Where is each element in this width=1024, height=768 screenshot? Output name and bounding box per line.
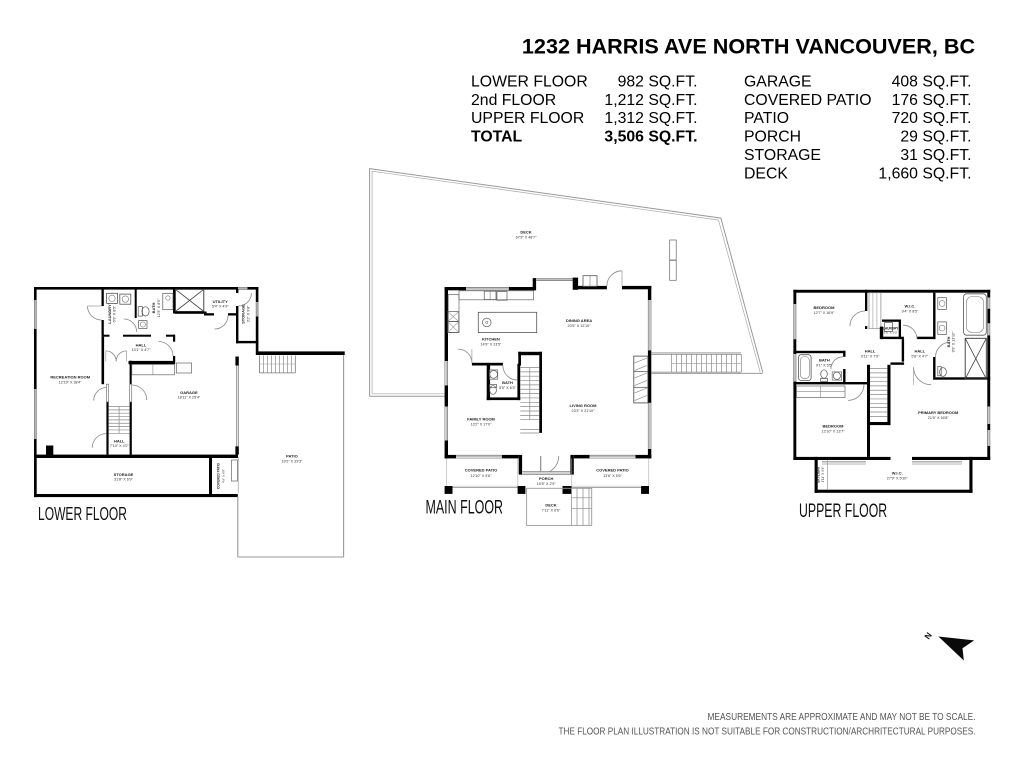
- svg-text:31 SQ.FT.: 31 SQ.FT.: [900, 147, 971, 164]
- svg-text:13'1" X 4'7": 13'1" X 4'7": [132, 348, 151, 352]
- svg-text:7'11" X 6'6": 7'11" X 6'6": [542, 509, 561, 513]
- svg-text:13'6" X 5'6": 13'6" X 5'6": [603, 474, 622, 478]
- svg-text:LAUNDRY: LAUNDRY: [107, 304, 112, 324]
- svg-text:9'9" X 13'10": 9'9" X 13'10": [952, 331, 956, 353]
- svg-text:5'8" X 4'7": 5'8" X 4'7": [911, 354, 928, 358]
- svg-text:3'6" X 3'3": 3'6" X 3'3": [884, 330, 898, 334]
- svg-text:BATH: BATH: [819, 358, 830, 363]
- svg-text:5'4" X 4'9": 5'4" X 4'9": [212, 305, 229, 309]
- svg-text:13'2" X 17'0": 13'2" X 17'0": [471, 423, 493, 427]
- svg-text:67'9" X 48'7": 67'9" X 48'7": [516, 236, 538, 240]
- svg-text:1,312 SQ.FT.: 1,312 SQ.FT.: [604, 110, 697, 127]
- svg-text:6'9" X 8'5": 6'9" X 8'5": [113, 305, 117, 322]
- svg-text:STORAGE: STORAGE: [744, 147, 821, 164]
- svg-text:UPPER FLOOR: UPPER FLOOR: [471, 110, 584, 127]
- svg-text:3,506 SQ.FT.: 3,506 SQ.FT.: [604, 129, 697, 146]
- svg-text:12'10" X 13'7": 12'10" X 13'7": [822, 429, 846, 433]
- svg-text:9'1" X 5'5": 9'1" X 5'5": [816, 363, 833, 367]
- svg-text:14'9" X 13'5": 14'9" X 13'5": [480, 342, 502, 346]
- svg-text:176 SQ.FT.: 176 SQ.FT.: [892, 92, 972, 109]
- svg-text:BATH: BATH: [502, 380, 513, 385]
- svg-text:MEASUREMENTS ARE APPROXIMATE A: MEASUREMENTS ARE APPROXIMATE AND MAY NOT…: [708, 712, 976, 723]
- svg-text:1232 HARRIS AVE NORTH VANCOUVE: 1232 HARRIS AVE NORTH VANCOUVER, BC: [522, 33, 975, 58]
- svg-text:982 SQ.FT.: 982 SQ.FT.: [618, 73, 698, 90]
- svg-text:W.I.C.: W.I.C.: [905, 303, 916, 308]
- svg-text:LIVING ROOM: LIVING ROOM: [570, 403, 598, 408]
- svg-text:HALL: HALL: [136, 343, 147, 348]
- svg-text:1'11" X 9'4": 1'11" X 9'4": [821, 466, 825, 482]
- svg-text:9'4" X 8'5": 9'4" X 8'5": [902, 309, 919, 313]
- svg-text:2nd FLOOR: 2nd FLOOR: [471, 92, 556, 109]
- svg-text:MAIN FLOOR: MAIN FLOOR: [426, 498, 504, 519]
- svg-text:10'5" X 2'9": 10'5" X 2'9": [537, 482, 556, 486]
- svg-text:27'9" X 5'10": 27'9" X 5'10": [887, 477, 909, 481]
- svg-text:PRIMARY BEDROOM: PRIMARY BEDROOM: [918, 410, 959, 415]
- svg-text:12'10" X 5'6": 12'10" X 5'6": [471, 474, 493, 478]
- svg-text:1,660 SQ.FT.: 1,660 SQ.FT.: [878, 165, 971, 182]
- svg-text:UPPER FLOOR: UPPER FLOOR: [799, 501, 887, 522]
- svg-text:20'5" X 12'10": 20'5" X 12'10": [568, 324, 592, 328]
- svg-text:W.I.C.: W.I.C.: [892, 470, 903, 475]
- svg-text:COVERED PATIO: COVERED PATIO: [596, 468, 629, 473]
- svg-text:BATH: BATH: [151, 302, 156, 313]
- svg-text:BEDROOM: BEDROOM: [823, 423, 845, 428]
- svg-text:HALL: HALL: [865, 348, 876, 353]
- svg-text:DINING AREA: DINING AREA: [566, 318, 592, 323]
- svg-text:LOWER FLOOR: LOWER FLOOR: [38, 503, 127, 524]
- svg-text:18'11" X 25'4": 18'11" X 25'4": [178, 396, 201, 400]
- svg-text:DECK: DECK: [744, 165, 788, 182]
- svg-text:DECK: DECK: [545, 503, 556, 508]
- svg-text:UTILITY: UTILITY: [213, 299, 228, 304]
- svg-text:FAMILY ROOM: FAMILY ROOM: [467, 417, 495, 422]
- svg-text:LOWER FLOOR: LOWER FLOOR: [471, 73, 588, 90]
- svg-text:COVERED PATIO: COVERED PATIO: [744, 92, 872, 109]
- svg-text:7'10" X 4'2": 7'10" X 4'2": [110, 444, 129, 448]
- svg-text:720 SQ.FT.: 720 SQ.FT.: [892, 110, 972, 127]
- svg-text:5'5" X 6'3": 5'5" X 6'3": [499, 386, 516, 390]
- svg-text:12'3" X 8'5": 12'3" X 8'5": [157, 298, 161, 317]
- svg-text:PORCH: PORCH: [539, 476, 554, 481]
- svg-text:N: N: [922, 630, 934, 641]
- svg-text:DECK: DECK: [520, 230, 531, 235]
- svg-text:THE FLOOR PLAN ILLUSTRATION IS: THE FLOOR PLAN ILLUSTRATION IS NOT SUITA…: [559, 727, 976, 738]
- svg-text:BEDROOM: BEDROOM: [814, 305, 836, 310]
- svg-text:9'11" X 7'9": 9'11" X 7'9": [861, 354, 880, 358]
- svg-text:31'8" X 6'9": 31'8" X 6'9": [114, 478, 133, 482]
- svg-text:1,212 SQ.FT.: 1,212 SQ.FT.: [604, 92, 697, 109]
- svg-text:3'2" X 9'8": 3'2" X 9'8": [246, 305, 250, 322]
- svg-text:12'7" X 16'9": 12'7" X 16'9": [814, 311, 836, 315]
- svg-text:TOTAL: TOTAL: [471, 129, 523, 146]
- svg-text:19'2" X 39'3": 19'2" X 39'3": [281, 459, 303, 463]
- svg-text:23'3" X 21'10": 23'3" X 21'10": [572, 409, 596, 413]
- svg-text:PATIO: PATIO: [286, 453, 298, 458]
- svg-text:PATIO: PATIO: [744, 110, 789, 127]
- svg-text:COVERED PATIO: COVERED PATIO: [217, 463, 221, 489]
- svg-text:STORAGE: STORAGE: [114, 472, 134, 477]
- svg-text:BATH: BATH: [946, 336, 951, 347]
- svg-text:RECREATION ROOM: RECREATION ROOM: [50, 375, 90, 380]
- svg-text:HALL: HALL: [114, 438, 125, 443]
- svg-text:GARAGE: GARAGE: [744, 73, 812, 90]
- svg-text:KITCHEN: KITCHEN: [482, 336, 500, 341]
- svg-text:29 SQ.FT.: 29 SQ.FT.: [900, 129, 971, 146]
- svg-text:12'19" X 38'4": 12'19" X 38'4": [59, 380, 83, 384]
- svg-text:21'6" X 16'8": 21'6" X 16'8": [928, 416, 950, 420]
- svg-text:GARAGE: GARAGE: [180, 390, 198, 395]
- svg-text:STORAGE: STORAGE: [241, 304, 246, 324]
- svg-text:408 SQ.FT.: 408 SQ.FT.: [892, 73, 972, 90]
- svg-text:4'9" X 6'8": 4'9" X 6'8": [221, 469, 225, 483]
- svg-text:COVERED PATIO: COVERED PATIO: [465, 468, 498, 473]
- svg-text:PORCH: PORCH: [744, 129, 801, 146]
- svg-text:HALL: HALL: [914, 348, 925, 353]
